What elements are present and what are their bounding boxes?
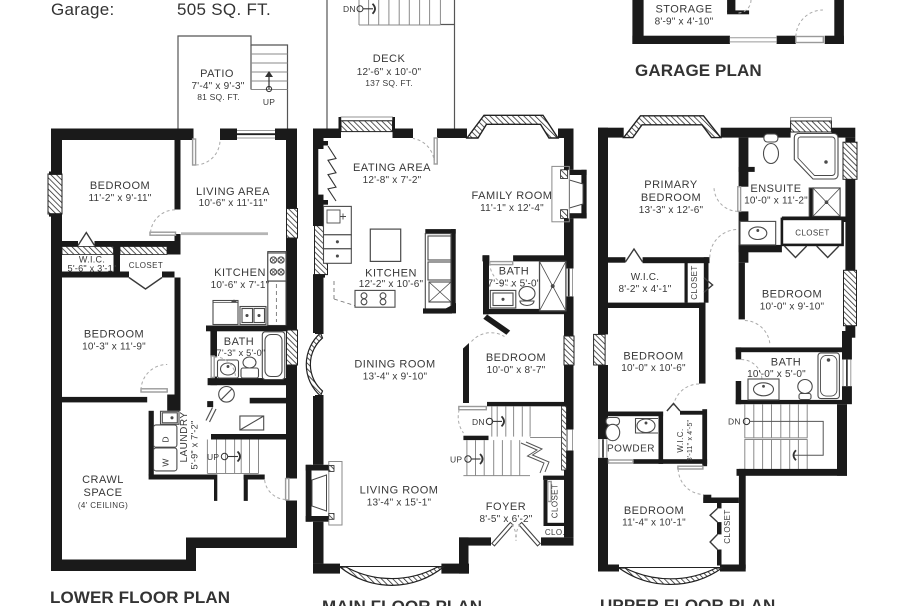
svg-text:DECK: DECK bbox=[373, 53, 406, 65]
svg-text:DN: DN bbox=[343, 4, 356, 14]
svg-text:10'-6" x 7'-1": 10'-6" x 7'-1" bbox=[211, 280, 270, 291]
svg-text:UPPER FLOOR PLAN: UPPER FLOOR PLAN bbox=[600, 596, 775, 606]
svg-text:81 SQ. FT.: 81 SQ. FT. bbox=[197, 92, 240, 102]
svg-text:BATH: BATH bbox=[771, 357, 802, 369]
svg-text:13'-4" x 15'-1": 13'-4" x 15'-1" bbox=[367, 498, 432, 509]
svg-text:BEDROOM: BEDROOM bbox=[762, 289, 822, 301]
svg-text:W: W bbox=[161, 458, 171, 466]
svg-text:EATING AREA: EATING AREA bbox=[353, 162, 431, 174]
svg-text:12'-8" x 7'-2": 12'-8" x 7'-2" bbox=[363, 175, 422, 186]
svg-text:PRIMARY: PRIMARY bbox=[644, 179, 698, 191]
svg-text:BEDROOM: BEDROOM bbox=[624, 505, 684, 517]
svg-text:10'-3" x 11'-9": 10'-3" x 11'-9" bbox=[82, 342, 146, 353]
svg-text:PATIO: PATIO bbox=[200, 68, 234, 80]
svg-text:11'-4" x 10'-1": 11'-4" x 10'-1" bbox=[622, 518, 686, 529]
svg-text:7'-9" x 5'-0": 7'-9" x 5'-0" bbox=[488, 279, 541, 290]
svg-text:DINING ROOM: DINING ROOM bbox=[354, 359, 435, 371]
svg-text:KITCHEN: KITCHEN bbox=[365, 268, 417, 280]
svg-text:8'-9" x 4'-10": 8'-9" x 4'-10" bbox=[655, 17, 714, 28]
svg-text:LIVING AREA: LIVING AREA bbox=[196, 186, 270, 198]
svg-text:DN: DN bbox=[472, 417, 485, 427]
svg-text:8'-5" x 6'-2": 8'-5" x 6'-2" bbox=[480, 514, 533, 525]
svg-text:8'-2" x 4'-1": 8'-2" x 4'-1" bbox=[619, 284, 672, 295]
svg-text:7'-3" x 5'-0": 7'-3" x 5'-0" bbox=[217, 348, 266, 358]
svg-text:137 SQ. FT.: 137 SQ. FT. bbox=[365, 78, 413, 88]
svg-text:CLO.: CLO. bbox=[545, 528, 565, 537]
svg-text:10'-0" x 9'-10": 10'-0" x 9'-10" bbox=[760, 302, 825, 313]
svg-text:DN: DN bbox=[728, 417, 741, 427]
svg-text:CLOSET: CLOSET bbox=[129, 261, 163, 270]
svg-text:11'-2" x 9'-11": 11'-2" x 9'-11" bbox=[88, 193, 151, 204]
svg-text:5'-6" x 3'-1": 5'-6" x 3'-1" bbox=[68, 264, 117, 274]
svg-text:MAIN FLOOR PLAN: MAIN FLOOR PLAN bbox=[322, 597, 482, 606]
svg-text:CLOSET: CLOSET bbox=[690, 265, 699, 299]
svg-text:BEDROOM: BEDROOM bbox=[90, 180, 150, 192]
svg-text:7'-4" x 9'-3": 7'-4" x 9'-3" bbox=[192, 81, 245, 92]
svg-text:W.I.C.: W.I.C. bbox=[631, 272, 659, 283]
svg-text:Garage:: Garage: bbox=[51, 0, 115, 19]
svg-text:3'-11" x 4'-5": 3'-11" x 4'-5" bbox=[687, 419, 694, 461]
svg-text:CLOSET: CLOSET bbox=[795, 229, 829, 238]
svg-text:UP: UP bbox=[207, 452, 219, 462]
svg-text:CLOSET: CLOSET bbox=[723, 509, 732, 543]
svg-text:KITCHEN: KITCHEN bbox=[214, 267, 266, 279]
svg-text:10'-0" x 11'-2": 10'-0" x 11'-2" bbox=[744, 196, 808, 207]
svg-text:13'-4" x 9'-10": 13'-4" x 9'-10" bbox=[363, 372, 428, 383]
svg-text:10'-0" x 5'-0": 10'-0" x 5'-0" bbox=[747, 369, 806, 380]
svg-text:10'-0" x 8'-7": 10'-0" x 8'-7" bbox=[487, 365, 546, 376]
svg-text:W.I.C.: W.I.C. bbox=[676, 428, 685, 452]
svg-text:BEDROOM: BEDROOM bbox=[641, 192, 701, 204]
svg-text:LIVING ROOM: LIVING ROOM bbox=[360, 485, 439, 497]
svg-text:13'-3" x 12'-6": 13'-3" x 12'-6" bbox=[639, 205, 704, 216]
svg-text:UP: UP bbox=[263, 97, 275, 107]
svg-text:505 SQ. FT.: 505 SQ. FT. bbox=[177, 0, 271, 19]
svg-text:BEDROOM: BEDROOM bbox=[623, 351, 683, 363]
svg-text:STORAGE: STORAGE bbox=[655, 4, 712, 16]
svg-text:D: D bbox=[161, 436, 171, 442]
svg-text:10'-6" x 11'-11": 10'-6" x 11'-11" bbox=[199, 198, 268, 209]
svg-text:LOWER FLOOR PLAN: LOWER FLOOR PLAN bbox=[50, 588, 230, 606]
svg-text:FAMILY ROOM: FAMILY ROOM bbox=[472, 190, 553, 202]
svg-text:11'-1" x 12'-4": 11'-1" x 12'-4" bbox=[480, 203, 544, 214]
svg-text:GARAGE PLAN: GARAGE PLAN bbox=[635, 61, 762, 80]
svg-text:BATH: BATH bbox=[224, 336, 255, 348]
svg-text:BEDROOM: BEDROOM bbox=[486, 352, 546, 364]
svg-text:10'-0" x 10'-6": 10'-0" x 10'-6" bbox=[621, 363, 686, 374]
svg-text:UP: UP bbox=[450, 455, 462, 465]
svg-text:ENSUITE: ENSUITE bbox=[750, 183, 801, 195]
svg-text:SPACE: SPACE bbox=[84, 487, 123, 499]
svg-text:CRAWL: CRAWL bbox=[82, 474, 124, 486]
svg-text:BATH: BATH bbox=[499, 266, 530, 278]
svg-text:CLOSET: CLOSET bbox=[551, 484, 560, 518]
svg-text:LAUNDRY: LAUNDRY bbox=[179, 411, 190, 462]
svg-text:FOYER: FOYER bbox=[486, 501, 526, 513]
svg-text:12'-6" x 10'-0": 12'-6" x 10'-0" bbox=[357, 67, 422, 78]
svg-text:12'-2" x 10'-6": 12'-2" x 10'-6" bbox=[359, 279, 424, 290]
svg-text:(4' CEILING): (4' CEILING) bbox=[78, 501, 128, 510]
svg-text:BEDROOM: BEDROOM bbox=[84, 329, 144, 341]
svg-text:POWDER: POWDER bbox=[607, 444, 655, 455]
svg-text:5'-9" x 7'-2": 5'-9" x 7'-2" bbox=[190, 421, 200, 470]
